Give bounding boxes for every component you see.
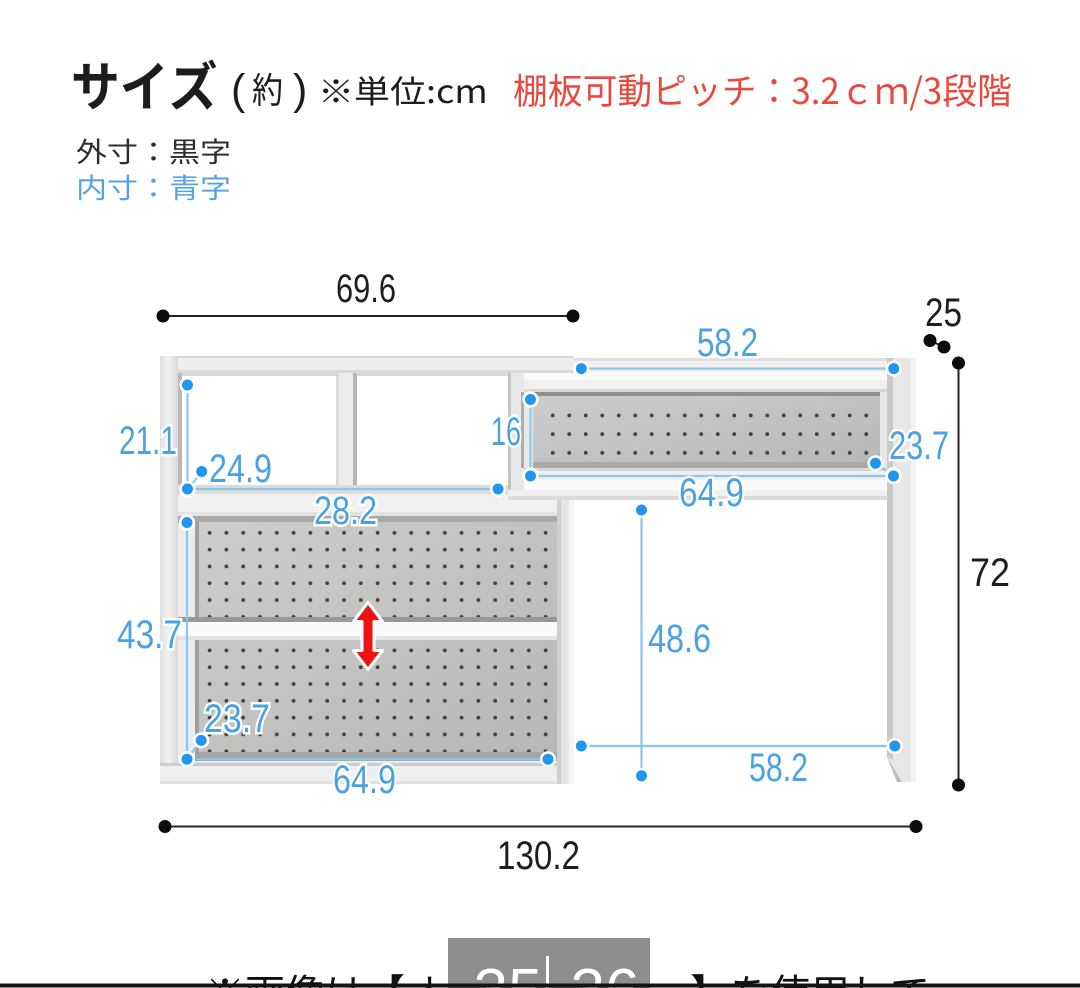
svg-text:36: 36 (571, 957, 640, 988)
svg-text:64.9: 64.9 (333, 758, 396, 802)
svg-text:35: 35 (474, 957, 543, 988)
svg-text:(: ( (231, 66, 246, 114)
svg-text:48.6: 48.6 (648, 617, 711, 661)
svg-text:28.2: 28.2 (314, 489, 377, 533)
svg-text:58.2: 58.2 (697, 321, 758, 365)
svg-text:58.2: 58.2 (749, 746, 808, 790)
svg-text:25: 25 (925, 291, 962, 335)
svg-text:72: 72 (970, 551, 1010, 595)
svg-text:16: 16 (491, 410, 521, 454)
svg-text:23.7: 23.7 (889, 424, 949, 468)
svg-text:21.1: 21.1 (119, 419, 177, 463)
svg-text:69.6: 69.6 (336, 267, 396, 311)
svg-text:64.9: 64.9 (679, 471, 744, 515)
svg-text:130.2: 130.2 (497, 834, 580, 878)
svg-text:43.7: 43.7 (117, 613, 182, 657)
svg-text:): ) (293, 66, 307, 114)
svg-text:24.9: 24.9 (209, 447, 272, 491)
svg-text:23.7: 23.7 (204, 697, 270, 741)
